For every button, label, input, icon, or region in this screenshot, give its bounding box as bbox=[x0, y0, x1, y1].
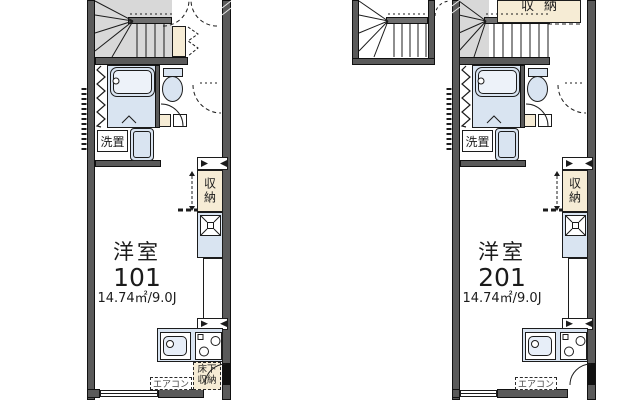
wall-room-divider-101 bbox=[95, 160, 161, 167]
wall-right-201 bbox=[587, 0, 596, 400]
toilet-tank-101 bbox=[163, 68, 183, 77]
toilet-side-storage-101 bbox=[159, 114, 171, 127]
stair-closet-101 bbox=[172, 26, 186, 57]
room-area-201: 14.74㎡/9.0J bbox=[452, 291, 552, 307]
bathtub-inner-201 bbox=[478, 70, 517, 94]
room-name-101: 洋室 bbox=[87, 240, 187, 264]
window-101 bbox=[100, 390, 158, 397]
entry-door-201 bbox=[587, 363, 596, 385]
wall-window-101-upper bbox=[197, 157, 228, 170]
stairbox-landing-bar bbox=[386, 17, 428, 24]
fridge-space-201 bbox=[568, 258, 588, 327]
wall-room-divider-201 bbox=[460, 160, 526, 167]
wall-bottom-101-b bbox=[158, 389, 204, 398]
room-number-201: 201 bbox=[452, 264, 552, 291]
aircon-101: エアコン bbox=[150, 377, 192, 390]
stove-201 bbox=[560, 332, 587, 360]
range-hood-center-101 bbox=[207, 222, 214, 229]
closet-label-101: 収納 bbox=[197, 170, 223, 212]
window-201 bbox=[460, 390, 497, 397]
range-hood-center-201 bbox=[572, 222, 579, 229]
washer-pan-inner-201 bbox=[498, 131, 516, 158]
washer-pan-inner-101 bbox=[133, 131, 151, 158]
line-art-common-stairs bbox=[359, 1, 450, 57]
underfloor-storage-101: 床下 収納 bbox=[193, 362, 221, 390]
storage-top-201: 収納 bbox=[497, 0, 581, 23]
toilet-side-box-201 bbox=[538, 114, 552, 127]
sink-101 bbox=[163, 336, 187, 356]
room-area-101: 14.74㎡/9.0J bbox=[87, 291, 187, 307]
aircon-label-201: エアコン bbox=[518, 377, 554, 390]
floor-plan: 洗置 収納 床下 収納 エアコン bbox=[0, 0, 640, 400]
underfloor-label-2: 収納 bbox=[197, 376, 216, 387]
bathtub-inner-101 bbox=[113, 70, 152, 94]
room-name-201: 洋室 bbox=[452, 240, 552, 264]
washer-label-201: 洗置 bbox=[462, 130, 493, 152]
wall-bottom-201-b bbox=[497, 389, 568, 398]
entry-door-101 bbox=[222, 363, 231, 385]
closet-label-201: 収納 bbox=[562, 170, 588, 212]
stove-101 bbox=[195, 332, 222, 360]
wall-bottom-201-a bbox=[452, 389, 460, 398]
fridge-space-101 bbox=[203, 258, 223, 327]
room-number-101: 101 bbox=[87, 264, 187, 291]
toilet-tank-201 bbox=[528, 68, 548, 77]
stairbox-wall-left bbox=[352, 0, 359, 65]
toilet-side-storage-201 bbox=[524, 114, 536, 127]
aircon-201: エアコン bbox=[515, 377, 557, 390]
room-label-201: 洋室 201 14.74㎡/9.0J bbox=[452, 240, 552, 307]
aircon-label-101: エアコン bbox=[153, 377, 189, 390]
stair-landing-bar-101 bbox=[128, 17, 172, 24]
wall-window-201-upper bbox=[562, 157, 593, 170]
washer-label-101: 洗置 bbox=[97, 130, 128, 152]
stairs-201 bbox=[459, 0, 489, 58]
toilet-side-box-101 bbox=[173, 114, 187, 127]
wall-stairs-bottom-201 bbox=[459, 57, 550, 65]
wall-bottom-101-a bbox=[87, 389, 100, 398]
sink-201 bbox=[528, 336, 552, 356]
wall-left-101 bbox=[87, 0, 95, 400]
wall-stairs-bottom-101 bbox=[95, 57, 188, 65]
storage-top-label-201: 収納 bbox=[498, 0, 580, 14]
wall-right-101 bbox=[222, 0, 231, 400]
stairbox-wall-right bbox=[428, 0, 435, 65]
room-label-101: 洋室 101 14.74㎡/9.0J bbox=[87, 240, 187, 307]
stairs-101 bbox=[95, 0, 172, 58]
stairbox-wall-bottom bbox=[352, 58, 435, 65]
